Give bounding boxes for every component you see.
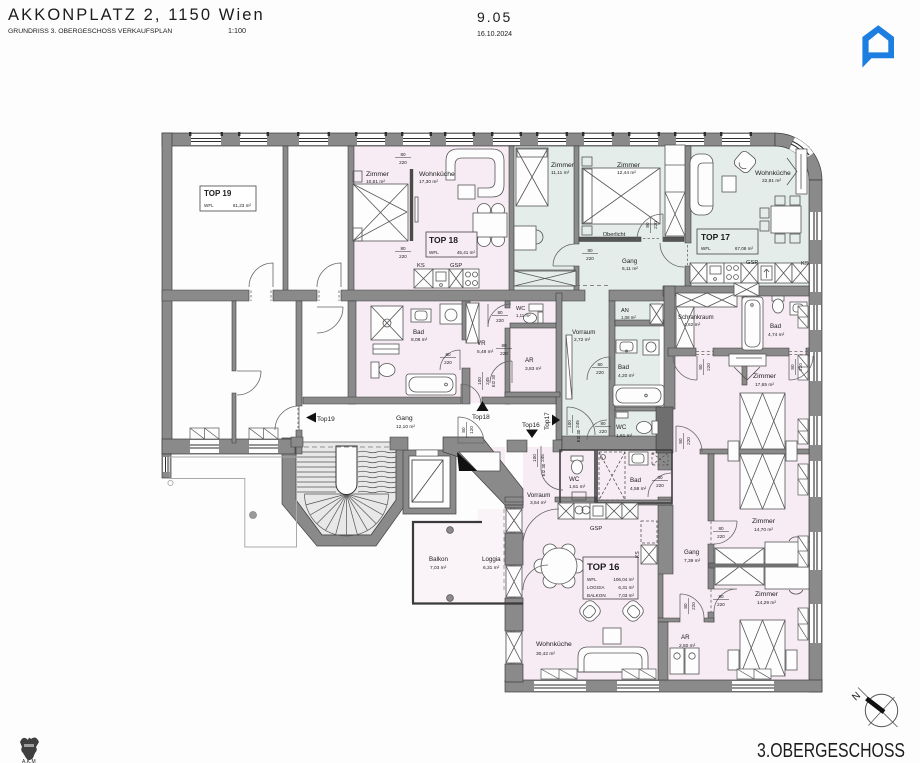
svg-text:80: 80 bbox=[497, 310, 503, 315]
svg-text:GSP: GSP bbox=[746, 260, 758, 266]
svg-text:16.10.2024: 16.10.2024 bbox=[477, 31, 512, 38]
svg-text:4,58 m²: 4,58 m² bbox=[630, 486, 647, 492]
svg-text:3,83 m²: 3,83 m² bbox=[525, 366, 542, 372]
svg-text:5,48 m²: 5,48 m² bbox=[477, 349, 494, 355]
svg-text:Gang: Gang bbox=[684, 549, 700, 556]
svg-text:220: 220 bbox=[500, 351, 508, 356]
svg-text:45,41 m²: 45,41 m² bbox=[457, 250, 476, 255]
svg-text:Top19: Top19 bbox=[317, 416, 335, 423]
svg-text:Zimmer: Zimmer bbox=[752, 518, 776, 525]
svg-text:Schrankraum: Schrankraum bbox=[678, 315, 714, 321]
svg-text:220: 220 bbox=[706, 363, 711, 371]
svg-text:GSP: GSP bbox=[450, 263, 462, 269]
svg-text:Wohnküche: Wohnküche bbox=[536, 641, 572, 648]
svg-text:22,81 m²: 22,81 m² bbox=[762, 178, 781, 184]
svg-text:EI2 30: EI2 30 bbox=[541, 463, 546, 476]
svg-text:10,61 m²: 10,61 m² bbox=[366, 179, 385, 185]
svg-text:100: 100 bbox=[567, 420, 572, 428]
svg-text:80: 80 bbox=[587, 248, 593, 253]
svg-text:WC: WC bbox=[516, 306, 525, 312]
svg-text:A.K.M: A.K.M bbox=[22, 759, 36, 763]
svg-text:Zimmer: Zimmer bbox=[753, 373, 777, 380]
svg-text:Wohnküche: Wohnküche bbox=[419, 171, 455, 178]
svg-text:17,65 m²: 17,65 m² bbox=[755, 382, 774, 388]
svg-text:GRUNDRISS 3. OBERGESCHOSS VERK: GRUNDRISS 3. OBERGESCHOSS VERKAUFSPLAN bbox=[8, 28, 172, 35]
svg-text:80: 80 bbox=[657, 475, 663, 480]
svg-text:Zimmer: Zimmer bbox=[755, 591, 779, 598]
svg-text:KS: KS bbox=[635, 551, 641, 558]
svg-text:12,10 m²: 12,10 m² bbox=[396, 424, 415, 430]
svg-text:Top17: Top17 bbox=[544, 412, 551, 430]
svg-text:220: 220 bbox=[586, 256, 594, 261]
svg-text:AR: AR bbox=[525, 357, 534, 364]
svg-text:GSP: GSP bbox=[590, 526, 602, 532]
svg-text:1:100: 1:100 bbox=[228, 26, 246, 35]
svg-text:120: 120 bbox=[469, 426, 474, 434]
svg-text:3.OBERGESCHOSS: 3.OBERGESCHOSS bbox=[757, 740, 905, 762]
svg-text:WFL: WFL bbox=[429, 250, 439, 255]
svg-text:AKKONPLATZ 2, 1150 Wien: AKKONPLATZ 2, 1150 Wien bbox=[8, 6, 265, 24]
svg-text:TOP 19: TOP 19 bbox=[204, 189, 232, 198]
svg-text:80: 80 bbox=[501, 343, 507, 348]
svg-text:1,11 m²: 1,11 m² bbox=[516, 313, 531, 318]
svg-text:80: 80 bbox=[600, 421, 606, 426]
svg-text:3,54 m²: 3,54 m² bbox=[530, 500, 547, 506]
svg-text:80: 80 bbox=[790, 364, 795, 370]
svg-text:9.05: 9.05 bbox=[477, 9, 512, 25]
svg-text:1,61 m²: 1,61 m² bbox=[569, 484, 586, 490]
svg-text:BALKON: BALKON bbox=[587, 593, 606, 598]
svg-text:220: 220 bbox=[798, 363, 803, 371]
svg-text:WFL: WFL bbox=[587, 577, 597, 582]
svg-text:AR: AR bbox=[681, 634, 690, 641]
svg-text:TOP 18: TOP 18 bbox=[429, 235, 458, 245]
svg-text:4,74 m²: 4,74 m² bbox=[768, 332, 785, 338]
svg-text:EI2 30: EI2 30 bbox=[491, 374, 496, 387]
svg-text:Zimmer: Zimmer bbox=[617, 162, 641, 169]
svg-text:80: 80 bbox=[645, 222, 650, 228]
svg-text:8,08 m²: 8,08 m² bbox=[411, 337, 428, 343]
svg-text:6,31 m²: 6,31 m² bbox=[483, 565, 500, 571]
svg-text:TOP 16: TOP 16 bbox=[587, 562, 619, 573]
svg-text:14,70 m²: 14,70 m² bbox=[754, 527, 773, 533]
svg-text:245: 245 bbox=[540, 454, 545, 462]
svg-text:2,50 m²: 2,50 m² bbox=[679, 643, 696, 649]
svg-text:80: 80 bbox=[683, 603, 688, 609]
svg-text:KS: KS bbox=[801, 261, 809, 267]
svg-text:80: 80 bbox=[698, 364, 703, 370]
svg-text:245: 245 bbox=[575, 420, 580, 428]
svg-text:1,61 m²: 1,61 m² bbox=[616, 433, 633, 439]
svg-text:7,03 m²: 7,03 m² bbox=[618, 593, 634, 598]
svg-text:WFL: WFL bbox=[204, 203, 214, 208]
svg-text:4,20 m²: 4,20 m² bbox=[618, 373, 635, 379]
svg-text:220: 220 bbox=[399, 254, 407, 259]
svg-text:80: 80 bbox=[461, 427, 466, 433]
svg-text:TOP 17: TOP 17 bbox=[701, 232, 730, 242]
svg-text:AN: AN bbox=[621, 308, 629, 314]
svg-text:100: 100 bbox=[532, 454, 537, 462]
svg-text:WC: WC bbox=[569, 476, 580, 483]
svg-text:EI2 30: EI2 30 bbox=[576, 429, 581, 442]
svg-text:220: 220 bbox=[686, 437, 691, 445]
svg-text:220: 220 bbox=[399, 160, 407, 165]
svg-text:30,42 m²: 30,42 m² bbox=[536, 651, 555, 657]
svg-text:7,03 m²: 7,03 m² bbox=[430, 565, 447, 571]
svg-text:80: 80 bbox=[718, 594, 724, 599]
svg-text:WFL: WFL bbox=[701, 246, 711, 251]
svg-text:7,39 m²: 7,39 m² bbox=[684, 558, 701, 564]
svg-text:61,23 m²: 61,23 m² bbox=[233, 203, 252, 208]
svg-text:220: 220 bbox=[496, 318, 504, 323]
svg-text:80: 80 bbox=[718, 526, 724, 531]
svg-text:Zimmer: Zimmer bbox=[551, 162, 575, 169]
svg-text:80: 80 bbox=[400, 152, 406, 157]
svg-text:80: 80 bbox=[445, 352, 451, 357]
svg-text:14,29 m²: 14,29 m² bbox=[757, 600, 776, 606]
svg-text:4,62 m²: 4,62 m² bbox=[684, 322, 701, 328]
svg-text:220: 220 bbox=[717, 534, 725, 539]
svg-text:Gang: Gang bbox=[622, 258, 638, 265]
svg-text:220: 220 bbox=[691, 602, 696, 610]
svg-text:Top18: Top18 bbox=[472, 414, 490, 421]
svg-text:1,08 m²: 1,08 m² bbox=[621, 315, 636, 320]
svg-text:2,72 m²: 2,72 m² bbox=[574, 337, 591, 343]
svg-text:Gang: Gang bbox=[396, 415, 413, 422]
svg-text:Vorraum: Vorraum bbox=[572, 329, 595, 336]
svg-text:Bad: Bad bbox=[413, 329, 425, 336]
svg-text:80: 80 bbox=[678, 438, 683, 444]
svg-text:12,44 m²: 12,44 m² bbox=[617, 170, 636, 176]
svg-text:Balkon: Balkon bbox=[429, 556, 448, 563]
svg-text:220: 220 bbox=[717, 602, 725, 607]
svg-text:Bad: Bad bbox=[618, 364, 630, 371]
svg-text:17,30 m²: 17,30 m² bbox=[419, 179, 438, 185]
svg-text:WC: WC bbox=[616, 424, 627, 431]
svg-text:220: 220 bbox=[444, 360, 452, 365]
svg-text:Bad: Bad bbox=[770, 323, 782, 330]
svg-text:Bad: Bad bbox=[630, 477, 642, 484]
svg-text:245: 245 bbox=[485, 377, 490, 385]
svg-text:Zimmer: Zimmer bbox=[366, 171, 390, 178]
svg-text:80: 80 bbox=[400, 246, 406, 251]
svg-text:220: 220 bbox=[596, 370, 604, 375]
svg-text:Vorraum: Vorraum bbox=[527, 492, 550, 499]
svg-text:80: 80 bbox=[597, 362, 603, 367]
svg-text:67,08 m²: 67,08 m² bbox=[735, 246, 754, 251]
svg-text:220: 220 bbox=[653, 221, 658, 229]
svg-text:6,11 m²: 6,11 m² bbox=[622, 266, 638, 272]
svg-text:Oberlicht: Oberlicht bbox=[603, 232, 626, 238]
svg-text:KS: KS bbox=[417, 263, 425, 269]
svg-text:11,11 m²: 11,11 m² bbox=[551, 170, 570, 176]
svg-text:100: 100 bbox=[477, 377, 482, 385]
svg-text:220: 220 bbox=[599, 429, 607, 434]
svg-text:LOGGIA: LOGGIA bbox=[587, 585, 606, 590]
svg-text:Wohnküche: Wohnküche bbox=[755, 170, 791, 177]
svg-text:220: 220 bbox=[656, 483, 664, 488]
svg-text:106,04 m²: 106,04 m² bbox=[613, 577, 634, 582]
svg-text:VR: VR bbox=[477, 340, 486, 347]
svg-text:6,31 m²: 6,31 m² bbox=[618, 585, 634, 590]
svg-text:Loggia: Loggia bbox=[482, 556, 501, 563]
svg-text:Top16: Top16 bbox=[522, 422, 540, 429]
